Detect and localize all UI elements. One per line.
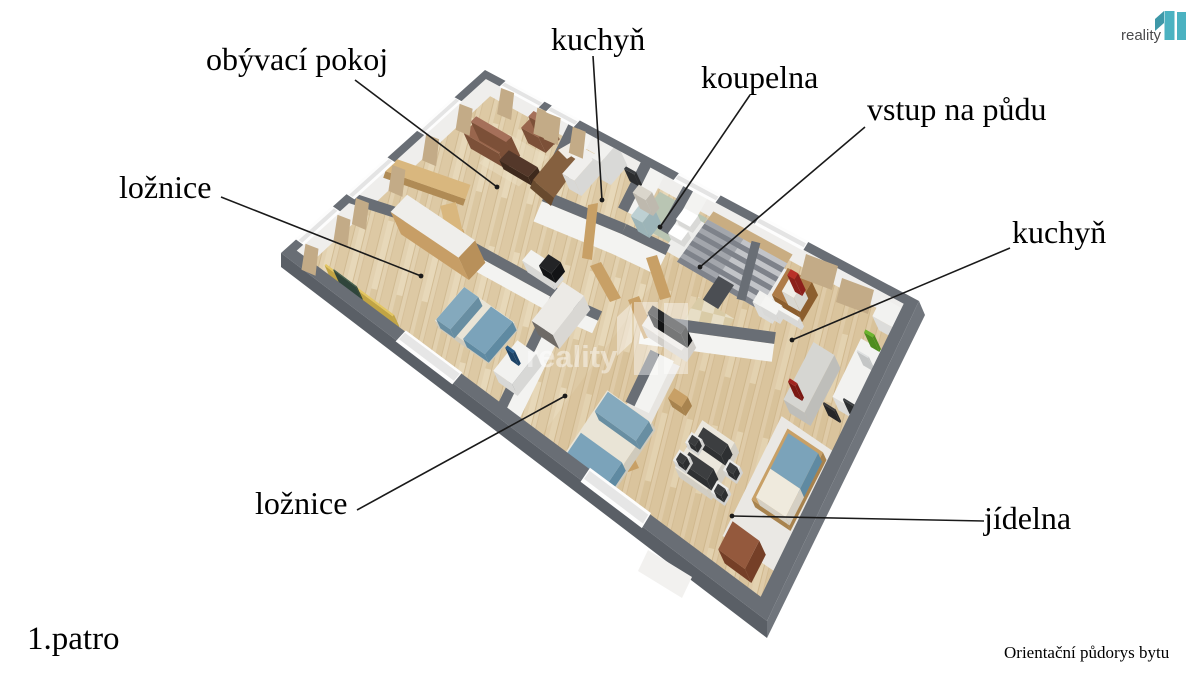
svg-text:reality: reality — [526, 339, 618, 374]
